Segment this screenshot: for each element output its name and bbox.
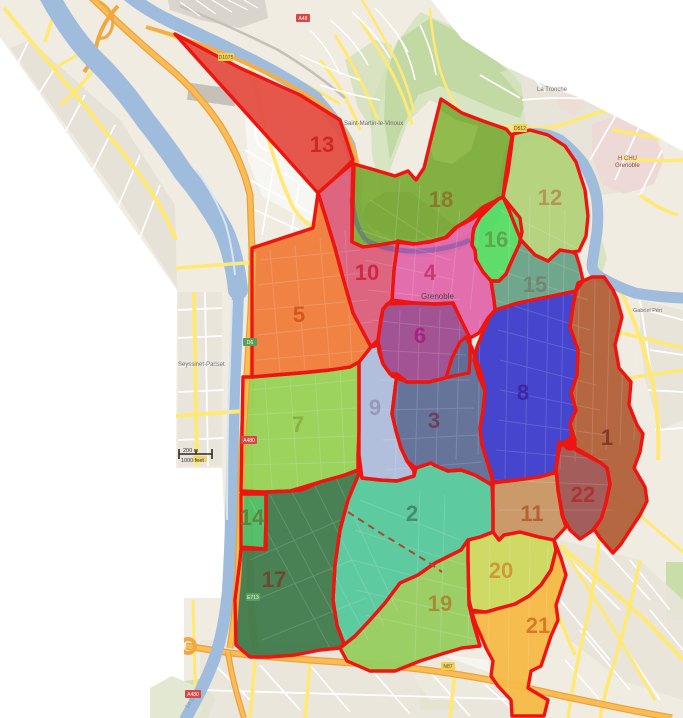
svg-text:11: 11: [520, 501, 543, 526]
svg-text:4: 4: [424, 260, 437, 285]
svg-text:A480: A480: [243, 438, 255, 444]
svg-text:6: 6: [414, 323, 426, 348]
svg-text:D512: D512: [514, 126, 526, 132]
svg-text:200 m: 200 m: [183, 448, 199, 454]
svg-text:22: 22: [571, 482, 595, 507]
svg-text:20: 20: [489, 558, 513, 583]
svg-text:7: 7: [292, 412, 304, 437]
svg-text:16: 16: [484, 227, 508, 252]
svg-text:La Tronche: La Tronche: [537, 87, 568, 93]
svg-text:1000 feet: 1000 feet: [181, 458, 204, 464]
svg-text:N87: N87: [443, 664, 452, 670]
svg-text:19: 19: [428, 591, 452, 616]
svg-text:Saint-Martin-le-Vinoux: Saint-Martin-le-Vinoux: [344, 121, 403, 127]
svg-text:H CHU: H CHU: [618, 156, 637, 162]
svg-text:14: 14: [240, 505, 265, 530]
svg-text:13: 13: [310, 132, 334, 157]
svg-text:17: 17: [262, 567, 286, 592]
svg-text:8: 8: [517, 380, 529, 405]
svg-text:D6: D6: [247, 340, 254, 346]
svg-text:A48: A48: [299, 16, 308, 22]
svg-text:Grenoble: Grenoble: [421, 292, 454, 301]
svg-text:9: 9: [369, 395, 381, 420]
svg-text:1: 1: [601, 425, 613, 450]
svg-text:12: 12: [538, 185, 562, 210]
svg-text:2: 2: [406, 501, 418, 526]
svg-text:18: 18: [429, 187, 453, 212]
svg-text:5: 5: [293, 302, 305, 327]
svg-text:Grenoble: Grenoble: [615, 163, 640, 169]
svg-text:Seyssinet-Pariset: Seyssinet-Pariset: [178, 362, 225, 368]
svg-text:Gabriel Péri: Gabriel Péri: [633, 308, 662, 314]
svg-text:21: 21: [526, 613, 550, 638]
svg-text:D1075: D1075: [219, 55, 234, 61]
svg-text:15: 15: [523, 272, 547, 297]
svg-text:3: 3: [428, 408, 440, 433]
svg-text:A480: A480: [187, 692, 199, 698]
svg-text:10: 10: [355, 260, 379, 285]
svg-text:E713: E713: [247, 595, 259, 601]
